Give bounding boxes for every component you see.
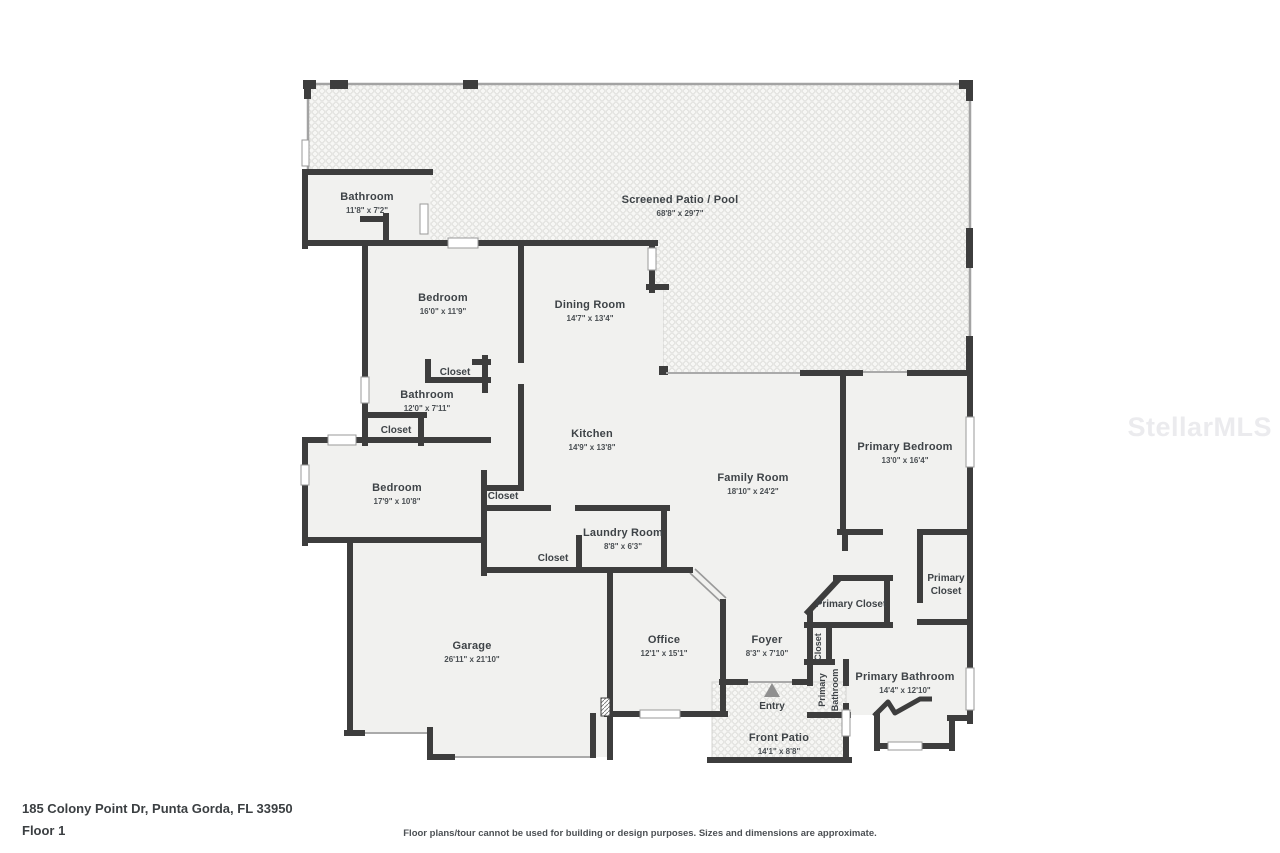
room-label-primary-closet-2-line1: Primary [927,573,965,584]
room-label-closet-foyer: Closet [813,633,823,661]
room-label-closet-2: Closet [381,425,412,436]
room-dims-family-room: 18'10" x 24'2" [727,487,779,496]
entry-label: Entry [759,701,785,712]
floor-plan-canvas: Screened Patio / Pool 68'8" x 29'7" Bath… [0,0,1280,853]
property-address: 185 Colony Point Dr, Punta Gorda, FL 339… [22,801,293,816]
room-label-office: Office [648,634,680,646]
garage-door-hatch [601,698,610,716]
room-dims-kitchen: 14'9" x 13'8" [569,443,616,452]
room-label-family-room: Family Room [717,472,788,484]
disclaimer-text: Floor plans/tour cannot be used for buil… [0,828,1280,839]
room-label-primary-bedroom: Primary Bedroom [857,441,952,453]
room-dims-bedroom-1: 16'0" x 11'9" [420,307,467,316]
room-label-screened-patio-pool: Screened Patio / Pool [622,194,739,206]
room-label-kitchen: Kitchen [571,428,613,440]
room-label-primary-bathroom-vestibule-line2: Bathroom [830,669,840,712]
room-dims-bathroom-1: 11'8" x 7'2" [346,206,388,215]
room-dims-dining-room: 14'7" x 13'4" [567,314,614,323]
room-dims-primary-bathroom: 14'4" x 12'10" [879,686,931,695]
room-label-bathroom-2: Bathroom [400,389,454,401]
room-label-laundry-room: Laundry Room [583,527,663,539]
room-dims-foyer: 8'3" x 7'10" [746,649,789,658]
room-label-closet-top: Closet [440,367,471,378]
room-dims-primary-bedroom: 13'0" x 16'4" [882,456,929,465]
room-dims-bathroom-2: 12'0" x 7'11" [404,404,451,413]
room-label-dining-room: Dining Room [555,299,626,311]
room-dims-bedroom-2: 17'9" x 10'8" [374,497,421,506]
room-dims-laundry-room: 8'8" x 6'3" [604,542,642,551]
room-label-bedroom-2: Bedroom [372,482,422,494]
room-label-bedroom-1: Bedroom [418,292,468,304]
floor-plan-page: Screened Patio / Pool 68'8" x 29'7" Bath… [0,0,1280,853]
room-dims-screened-patio-pool: 68'8" x 29'7" [657,209,704,218]
room-label-closet-garage: Closet [538,553,569,564]
room-dims-front-patio: 14'1" x 8'8" [758,747,801,756]
room-label-primary-bathroom-vestibule-line1: Primary [817,673,827,707]
room-label-primary-bathroom: Primary Bathroom [855,671,954,683]
room-label-bathroom-1: Bathroom [340,191,394,203]
room-label-garage: Garage [452,640,491,652]
room-label-primary-closet-2-line2: Closet [931,586,962,597]
room-label-front-patio: Front Patio [749,732,809,744]
room-label-foyer: Foyer [752,634,783,646]
room-label-closet-hall: Closet [488,491,519,502]
room-label-primary-closet-1: Primary Closet [816,599,887,610]
room-dims-garage: 26'11" x 21'10" [444,655,500,664]
room-dims-office: 12'1" x 15'1" [641,649,688,658]
stellar-mls-watermark: StellarMLS [1127,412,1272,443]
